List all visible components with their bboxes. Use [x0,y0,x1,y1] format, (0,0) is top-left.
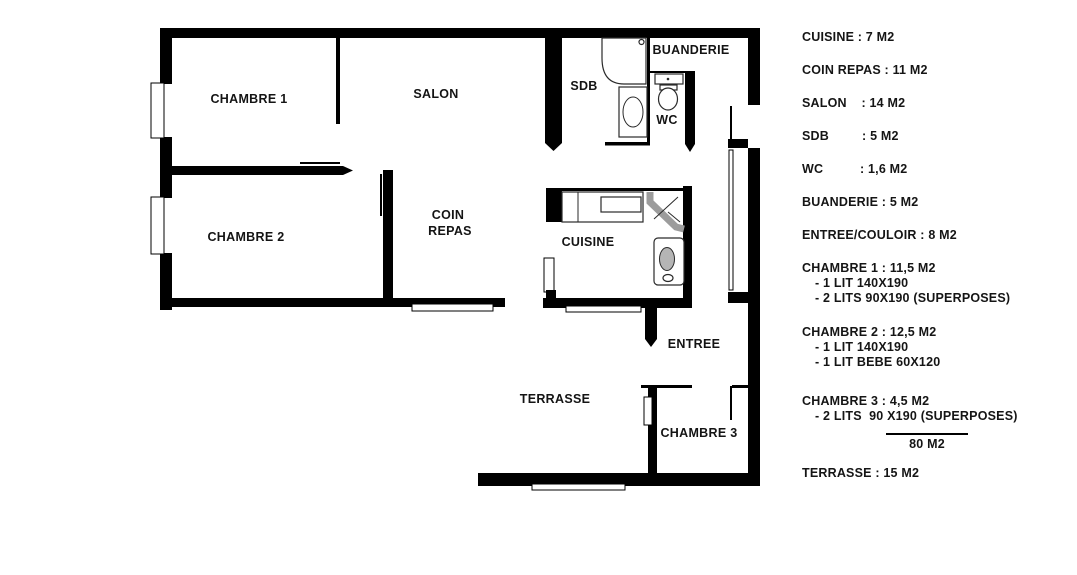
buanderie-door-leaf [730,106,732,142]
legend-item-wc: WC : 1,6 M2 [802,162,1077,177]
wall-right-top [748,28,760,105]
wall-left-a [160,28,172,84]
legend-item-sdb: SDB : 5 M2 [802,129,1077,144]
legend-sub-item: - 2 LITS 90 X190 (SUPERPOSES) [815,409,1077,424]
window-left-1 [151,83,164,138]
wall-coin-repas [383,170,393,300]
legend-group-chambre2: CHAMBRE 2 : 12,5 M2 - 1 LIT 140X190 - 1 … [802,325,1077,370]
legend-item-salon: SALON : 14 M2 [802,96,1077,111]
wc-sink-dot-icon [667,78,670,81]
window-chambre3 [644,397,652,425]
sdb-door-leaf [605,142,650,146]
legend-sub-item: - 2 LITS 90X190 (SUPERPOSES) [815,291,1077,306]
legend-sub-item: - 1 LIT BEBE 60X120 [815,355,1077,370]
room-label-coin: COIN [432,208,464,222]
legend-group-chambre1: CHAMBRE 1 : 11,5 M2 - 1 LIT 140X190 - 2 … [802,261,1077,306]
wall-end-arrow [343,166,353,175]
wall-chambre1-chambre2 [172,166,343,175]
legend-item-chambre1: CHAMBRE 1 : 11,5 M2 [802,261,1077,276]
room-label-entree: ENTREE [668,337,721,351]
room-label-wc: WC [656,113,677,127]
window-terrasse [532,484,625,490]
wall-right-cap2 [728,292,760,303]
kitchen-sink-icon [601,197,641,212]
wall-cuisine-left-upper [546,188,562,222]
fridge-detail2-icon [663,275,673,282]
legend-total-area: 80 M2 [886,435,968,452]
bathtub-icon [602,38,646,84]
legend-sub-item: - 1 LIT 140X190 [815,276,1077,291]
legend-item-buanderie: BUANDERIE : 5 M2 [802,195,1077,210]
room-label-chambre2: CHAMBRE 2 [207,230,284,244]
window-left-2 [151,197,164,254]
window-right-band [729,150,733,290]
window-bottom-left [412,304,493,311]
legend-sub-item: - 1 LIT 140X190 [815,340,1077,355]
legend-group-chambre3: CHAMBRE 3 : 4,5 M2 - 2 LITS 90 X190 (SUP… [802,394,1077,424]
wall-right-low [748,303,760,486]
chambre3-jamb [732,385,750,388]
wall-left-b [160,137,172,198]
wall-sdb-left [545,38,562,143]
legend-item-terrasse: TERRASSE : 15 M2 [802,466,1077,481]
coin-repas-door-leaf [380,174,382,216]
toilet-bowl-icon [659,88,678,110]
bathtub-faucet-icon [639,40,644,45]
chambre-door-leaf [300,162,340,164]
legend-total: 80 M2 [802,433,1077,452]
wall-cuisine-top [546,188,690,191]
room-label-terrasse: TERRASSE [520,392,590,406]
wall-entree-stub [645,308,657,339]
room-label-chambre3: CHAMBRE 3 [660,426,737,440]
room-label-buanderie: BUANDERIE [652,43,729,57]
wall-wc-right [685,71,695,144]
wall-chambre1-salon [336,38,340,124]
legend-item-entree-couloir: ENTREE/COULOIR : 8 M2 [802,228,1077,243]
legend-item-cuisine: CUISINE : 7 M2 [802,30,1077,45]
wall-wc-tip [685,144,695,152]
wall-right-mid [748,148,760,292]
legend-item-coin-repas: COIN REPAS : 11 M2 [802,63,1077,78]
chambre3-door-leaf [730,386,732,420]
room-label-sdb: SDB [570,79,597,93]
wall-top [160,28,760,38]
room-label-repas: REPAS [428,224,472,238]
wall-entree-stub-tip [645,339,657,347]
legend-item-chambre3: CHAMBRE 3 : 4,5 M2 [802,394,1077,409]
wall-sdb-left-tip [545,143,562,151]
window-cuisine-left [544,258,554,292]
wall-right-cap1 [728,139,748,148]
corner-counter-icon [650,192,684,229]
room-label-chambre1: CHAMBRE 1 [210,92,287,106]
legend: CUISINE : 7 M2 COIN REPAS : 11 M2 SALON … [802,30,1077,481]
room-label-cuisine: CUISINE [562,235,615,249]
room-label-salon: SALON [413,87,458,101]
window-cuisine-bottom [566,306,641,312]
legend-item-chambre2: CHAMBRE 2 : 12,5 M2 [802,325,1077,340]
fridge-detail-icon [660,248,675,271]
